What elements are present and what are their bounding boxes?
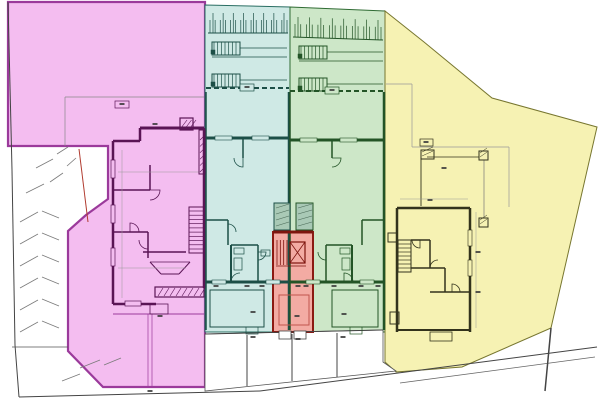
- plan-rect: [212, 280, 226, 284]
- plan-rect: [298, 86, 302, 90]
- plan-wall-line: [20, 234, 38, 244]
- plan-wall-line: [42, 299, 59, 306]
- plan-rect: [111, 160, 115, 178]
- plan-rect: [298, 54, 302, 58]
- dimension-micro-label: [330, 89, 335, 91]
- floor-plan-canvas: [0, 0, 600, 400]
- plan-wall-line: [42, 233, 59, 240]
- plan-rect: [306, 280, 320, 284]
- plan-rect: [300, 138, 317, 142]
- plan-wall-line: [20, 278, 38, 288]
- dimension-micro-label: [476, 251, 481, 253]
- plan-wall-line: [42, 211, 59, 218]
- plan-rect: [468, 230, 472, 246]
- plan-wall-line: [36, 159, 53, 168]
- plan-wall-line: [42, 277, 59, 284]
- dimension-micro-label: [476, 291, 481, 293]
- plan-wall-line: [19, 391, 260, 397]
- plan-wall-line: [20, 300, 38, 310]
- plan-rect: [340, 138, 357, 142]
- dimension-micro-label: [251, 311, 256, 313]
- plan-wall-line: [15, 345, 19, 397]
- plan-rect: [279, 331, 291, 339]
- dimension-micro-label: [428, 199, 433, 201]
- dimension-micro-label: [251, 336, 256, 338]
- dimension-micro-label: [304, 285, 309, 287]
- plan-wall-line: [67, 158, 76, 166]
- dimension-micro-label: [424, 141, 429, 143]
- plan-wall-line: [545, 328, 551, 391]
- dimension-micro-label: [359, 285, 364, 287]
- plan-wall-line: [20, 322, 38, 332]
- dimension-micro-label: [332, 285, 337, 287]
- dimension-micro-label: [158, 315, 163, 317]
- dimension-micro-label: [376, 285, 381, 287]
- plan-wall-line: [62, 374, 80, 381]
- plan-wall-line: [12, 170, 15, 345]
- dimension-micro-label: [295, 315, 300, 317]
- dimension-micro-label: [120, 103, 125, 105]
- plan-rect: [211, 82, 215, 86]
- plan-wall-line: [50, 173, 63, 182]
- plan-wall-line: [26, 184, 44, 193]
- plan-rect: [266, 280, 280, 284]
- dimension-micro-label: [342, 313, 347, 315]
- plan-wall-line: [57, 147, 68, 154]
- dimension-micro-label: [148, 390, 153, 392]
- plan-wall-line: [42, 321, 59, 328]
- plan-rect: [125, 301, 141, 306]
- plan-rect: [211, 50, 215, 54]
- dimension-micro-label: [245, 86, 250, 88]
- plan-rect: [215, 136, 232, 140]
- dimension-micro-label: [341, 336, 346, 338]
- dimension-micro-label: [153, 123, 158, 125]
- plan-rect: [252, 136, 269, 140]
- dimension-micro-label: [442, 167, 447, 169]
- dimension-micro-label: [296, 338, 301, 340]
- plan-wall-line: [20, 256, 38, 266]
- zone-pink-unit: [8, 2, 205, 387]
- plan-rect: [111, 248, 115, 266]
- plan-rect: [360, 280, 374, 284]
- dimension-micro-label: [245, 285, 250, 287]
- dimension-micro-label: [214, 285, 219, 287]
- zone-yellow-unit: [385, 11, 597, 372]
- dimension-micro-label: [260, 285, 265, 287]
- plan-rect: [468, 260, 472, 276]
- plan-rect: [111, 205, 115, 223]
- floor-plan-page: [0, 0, 600, 400]
- plan-wall-line: [79, 149, 88, 222]
- plan-rect: [294, 331, 306, 339]
- dimension-micro-label: [296, 285, 301, 287]
- plan-wall-line: [42, 255, 59, 262]
- plan-wall-line: [20, 212, 38, 222]
